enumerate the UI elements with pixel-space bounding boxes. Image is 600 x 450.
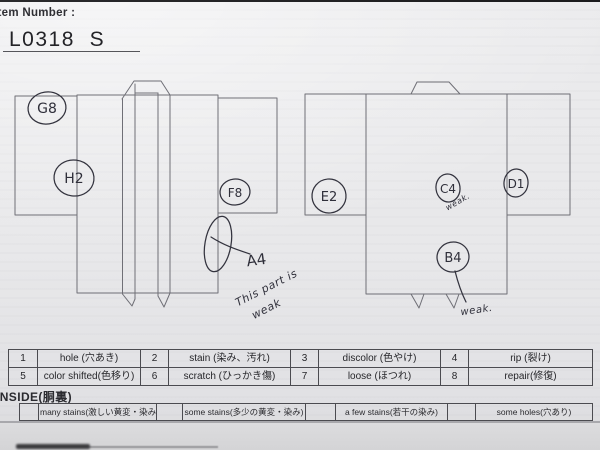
inside-checkbox-cell-2 xyxy=(157,404,183,421)
label-b4: B4 xyxy=(444,251,461,266)
defect-num-2: 2 xyxy=(141,350,169,368)
back-body xyxy=(366,94,507,294)
defect-label-loose: loose (ほつれ) xyxy=(319,368,441,386)
label-c4: C4 xyxy=(440,182,456,196)
defect-label-scratch: scratch (ひっかき傷) xyxy=(169,368,291,386)
inside-checkbox-cell-3 xyxy=(306,404,336,421)
defect-label-discolor: discolor (色やけ) xyxy=(319,350,441,368)
defect-num-3: 3 xyxy=(291,350,319,368)
defect-label-repair: repair(修復) xyxy=(469,368,593,386)
inside-checkbox-cell-4 xyxy=(448,404,476,421)
front-collar xyxy=(122,81,170,99)
inside-label-some-stains: some stains(多少の黄変・染み) xyxy=(183,404,306,421)
defect-num-4: 4 xyxy=(441,350,469,368)
label-a4: A4 xyxy=(245,250,267,271)
b4-pointer-line xyxy=(455,271,466,302)
defect-num-7: 7 xyxy=(291,368,319,386)
defect-label-hole: hole (穴あき) xyxy=(38,350,141,368)
label-f8: F8 xyxy=(228,186,243,200)
back-hem-notch-right xyxy=(446,294,459,308)
inside-label-few-stains: a few stains(若干の染み) xyxy=(336,404,448,421)
label-h2: H2 xyxy=(64,171,83,187)
back-collar xyxy=(411,82,460,94)
inside-condition-table: many stains(激しい黄変・染み) some stains(多少の黄変・… xyxy=(19,403,593,421)
front-band-point-right xyxy=(158,293,170,307)
defect-row-1: 1 hole (穴あき) 2 stain (染み、汚れ) 3 discolor … xyxy=(9,350,593,368)
photo-bottom-smudge xyxy=(16,444,90,449)
inspection-sheet-photo: Item Number : L0318 S xyxy=(0,0,600,450)
defect-label-color-shifted: color shifted(色移り) xyxy=(38,368,141,386)
photo-bottom-smudge-tail xyxy=(88,446,218,448)
defect-num-6: 6 xyxy=(141,368,169,386)
defect-num-8: 8 xyxy=(441,368,469,386)
inside-checkbox-cell-1 xyxy=(20,404,39,421)
defect-row-2: 5 color shifted(色移り) 6 scratch (ひっかき傷) 7… xyxy=(9,368,593,386)
defect-num-5: 5 xyxy=(9,368,38,386)
inside-label-many-stains: many stains(激しい黄変・染み) xyxy=(39,404,157,421)
defect-label-rip: rip (裂け) xyxy=(469,350,593,368)
inside-label-some-holes: some holes(穴あり) xyxy=(476,404,593,421)
label-d1: D1 xyxy=(508,177,525,191)
defect-num-1: 1 xyxy=(9,350,38,368)
back-annotations: E2 C4 weak. D1 B4 weak. xyxy=(311,168,530,318)
label-g8: G8 xyxy=(37,101,57,117)
front-body xyxy=(77,95,218,293)
b4-note: weak. xyxy=(460,303,494,318)
back-hem-notch-left xyxy=(411,294,424,308)
label-e2: E2 xyxy=(321,190,338,205)
inside-row: many stains(激しい黄変・染み) some stains(多少の黄変・… xyxy=(20,404,593,421)
defect-code-table: 1 hole (穴あき) 2 stain (染み、汚れ) 3 discolor … xyxy=(8,349,593,386)
defect-label-stain: stain (染み、汚れ) xyxy=(169,350,291,368)
front-annotations: G8 H2 F8 A4 This part is weak xyxy=(26,90,300,322)
front-band-point-left xyxy=(123,294,136,306)
